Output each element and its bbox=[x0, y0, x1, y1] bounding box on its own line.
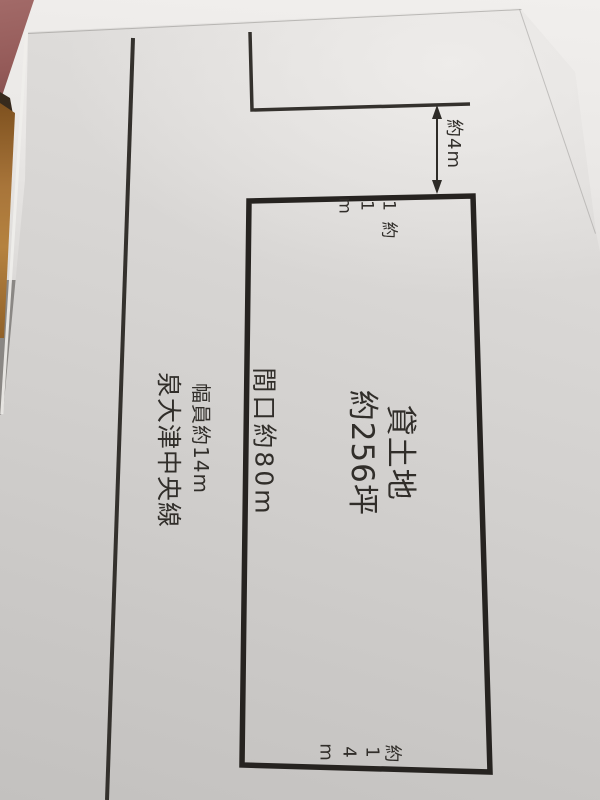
gap-dimension-label-wrap: 約4m bbox=[425, 114, 485, 174]
road-name-label-wrap: 泉大津中央線 bbox=[90, 370, 250, 530]
plot-title-line1: 貸土地 bbox=[380, 390, 418, 516]
photo-of-land-diagram: 約4m 約11m 貸土地 約256坪 間口約80m 幅員約14m 泉大津中央線 … bbox=[0, 0, 600, 800]
top-dimension-label: 約11m bbox=[318, 196, 398, 241]
road-name-label: 泉大津中央線 bbox=[152, 372, 188, 528]
bottom-dimension-label: 約14m bbox=[314, 738, 403, 764]
plot-title: 貸土地 約256坪 bbox=[342, 390, 418, 516]
arrowhead-down-icon bbox=[432, 180, 442, 194]
road-near-edge-line bbox=[250, 32, 470, 110]
gap-dimension-label: 約4m bbox=[442, 119, 468, 169]
plot-title-line2: 約256坪 bbox=[342, 390, 380, 516]
top-dimension-label-wrap: 約11m bbox=[318, 178, 398, 258]
bottom-dimension-label-wrap: 約14m bbox=[313, 706, 403, 796]
